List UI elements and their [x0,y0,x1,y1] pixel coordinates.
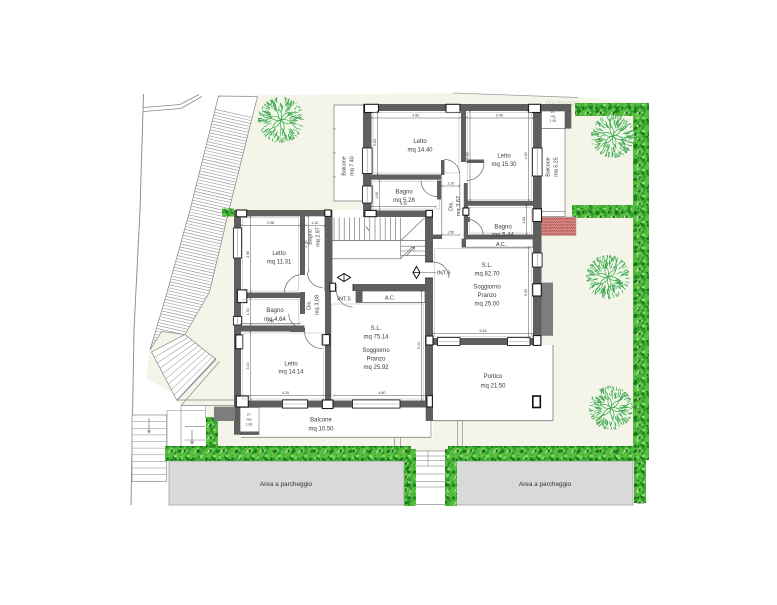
svg-text:v.t.: v.t. [247,413,251,417]
svg-text:Bagno: Bagno [494,225,512,231]
svg-text:4.50: 4.50 [412,114,419,118]
svg-text:2.78: 2.78 [304,241,308,248]
svg-text:1.50: 1.50 [447,231,454,235]
svg-text:5.18: 5.18 [480,329,487,333]
svg-text:Soggiorno: Soggiorno [362,348,390,354]
svg-text:3.20: 3.20 [373,139,377,146]
svg-text:1.10: 1.10 [447,182,454,186]
svg-text:1.60: 1.60 [375,192,379,199]
svg-text:1.68: 1.68 [522,217,526,224]
svg-text:mq 14.14: mq 14.14 [278,370,304,376]
svg-text:S.L.: S.L. [482,263,493,269]
svg-text:4.20: 4.20 [282,391,289,395]
svg-text:mq 3.08: mq 3.08 [315,295,321,315]
svg-text:mq 14.40: mq 14.40 [407,148,433,154]
svg-text:S.L.: S.L. [371,326,382,332]
svg-text:Balcone: Balcone [310,418,332,424]
svg-text:mq 82.70: mq 82.70 [474,272,500,278]
svg-text:Letto: Letto [272,251,286,257]
svg-text:3.98: 3.98 [246,251,250,258]
svg-text:mq 75.14: mq 75.14 [363,335,389,341]
svg-text:1.90: 1.90 [550,119,557,123]
svg-text:A.C.: A.C. [496,242,506,248]
svg-text:Dis.: Dis. [307,300,313,310]
svg-text:Letto: Letto [413,139,427,145]
svg-text:4.50: 4.50 [524,152,528,159]
svg-text:5.00: 5.00 [524,289,528,296]
svg-text:Balcone: Balcone [546,157,552,176]
svg-text:mq 10.50: mq 10.50 [308,427,334,433]
svg-text:mq 3.67: mq 3.67 [456,196,462,216]
svg-text:1.63: 1.63 [246,308,250,315]
svg-text:INT.6: INT.6 [437,271,451,277]
svg-text:2.98: 2.98 [267,221,274,225]
svg-text:Pranzo: Pranzo [366,357,386,363]
svg-text:Area a parcheggio: Area a parcheggio [519,481,572,488]
svg-text:mq 7.40: mq 7.40 [350,156,356,175]
svg-text:Portico: Portico [484,374,503,380]
svg-text:4.80: 4.80 [379,391,386,395]
svg-text:mq 21.50: mq 21.50 [480,384,506,390]
svg-text:4.50: 4.50 [465,152,469,159]
svg-text:1.10: 1.10 [311,221,318,225]
svg-text:Bagno: Bagno [266,308,284,314]
svg-text:Pranzo: Pranzo [477,293,497,299]
svg-text:Bagno: Bagno [395,190,413,196]
svg-text:Soggiorno: Soggiorno [473,285,501,291]
svg-text:mq 25.92: mq 25.92 [363,365,389,371]
svg-text:1.06: 1.06 [246,423,253,427]
svg-text:2.98: 2.98 [267,319,274,323]
svg-text:mq 5.44: mq 5.44 [492,233,514,239]
svg-text:mq 15.30: mq 15.30 [491,162,517,168]
svg-text:2.40: 2.40 [496,114,503,118]
svg-text:Letto: Letto [284,362,298,368]
svg-text:Dis.: Dis. [449,201,455,211]
svg-text:mq 11.31: mq 11.31 [267,260,292,266]
svg-text:A.C.: A.C. [385,295,395,301]
svg-text:Balcone: Balcone [342,156,348,175]
svg-text:3.43: 3.43 [246,363,250,370]
svg-text:5.44: 5.44 [417,342,421,349]
svg-text:v.t.: v.t. [551,110,555,114]
svg-text:Area a parcheggio: Area a parcheggio [260,481,313,488]
svg-text:mq: mq [551,115,556,119]
svg-text:INT.5: INT.5 [337,297,351,303]
svg-text:mq 2.97: mq 2.97 [316,227,322,246]
svg-text:mq 25.00: mq 25.00 [474,302,500,308]
svg-text:3.30: 3.30 [400,202,407,206]
svg-text:Letto: Letto [497,154,511,160]
svg-text:mq: mq [247,418,252,422]
svg-text:mq 5.25: mq 5.25 [554,157,560,176]
